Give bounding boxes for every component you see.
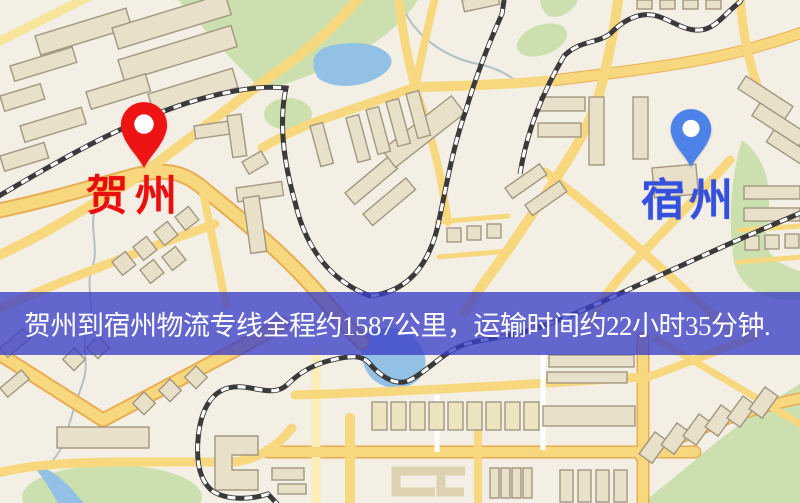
map-screenshot: 贺州 宿州 贺州到宿州物流专线全程约1587公里，运输时间约22小时35分钟. xyxy=(0,0,800,503)
origin-pin-body xyxy=(121,102,167,168)
origin-city-label: 贺州 xyxy=(86,176,184,218)
destination-pin-icon[interactable] xyxy=(668,108,714,168)
origin-pin-hole xyxy=(134,114,154,134)
destination-city-label: 宿州 xyxy=(641,179,737,223)
map-canvas[interactable] xyxy=(0,0,800,503)
destination-pin-body xyxy=(671,109,712,167)
destination-pin-hole xyxy=(682,120,699,137)
origin-pin-icon[interactable] xyxy=(118,100,170,170)
route-info-text: 贺州到宿州物流专线全程约1587公里，运输时间约22小时35分钟. xyxy=(24,304,770,343)
route-info-banner: 贺州到宿州物流专线全程约1587公里，运输时间约22小时35分钟. xyxy=(0,292,800,355)
